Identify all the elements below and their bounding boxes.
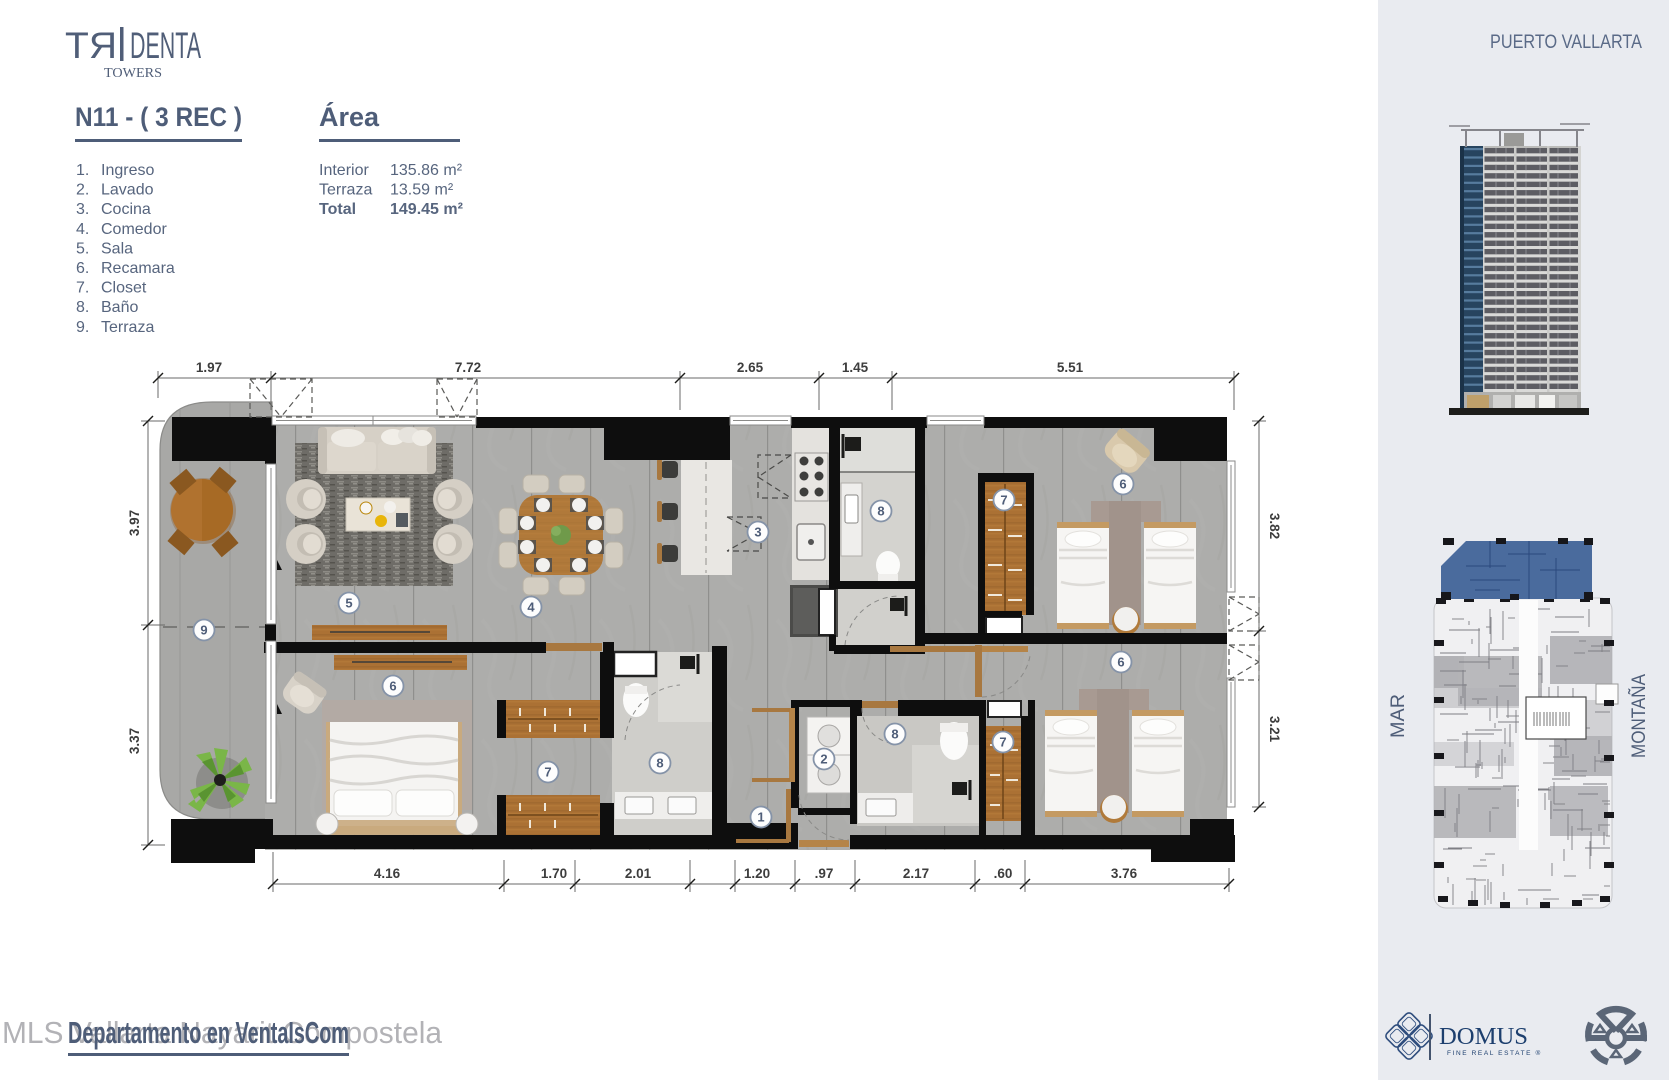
svg-text:5: 5 [345,596,352,611]
svg-text:Baño: Baño [101,299,138,316]
svg-text:2.65: 2.65 [737,360,764,375]
svg-text:2.01: 2.01 [625,866,652,881]
svg-text:4.16: 4.16 [374,866,401,881]
svg-text:3.21: 3.21 [1267,716,1282,743]
svg-text:6: 6 [1117,655,1124,670]
svg-text:7: 7 [544,765,551,780]
svg-text:Departamento en VentaIsCom: Departamento en VentaIsCom [68,1015,349,1050]
svg-text:.97: .97 [815,866,834,881]
svg-text:N11 - ( 3 REC ): N11 - ( 3 REC ) [75,102,242,132]
svg-text:8.: 8. [76,299,89,316]
svg-text:3.: 3. [76,201,89,218]
svg-text:DOMUS: DOMUS [1439,1024,1528,1050]
svg-text:3.82: 3.82 [1267,513,1282,539]
svg-text:1.70: 1.70 [541,866,567,881]
svg-text:3.76: 3.76 [1111,866,1138,881]
svg-text:1: 1 [757,810,764,825]
svg-text:TOWERS: TOWERS [104,66,162,81]
svg-text:149.45 m²: 149.45 m² [390,201,463,218]
svg-text:3.97: 3.97 [127,510,142,536]
svg-text:Cocina: Cocina [101,201,151,218]
svg-text:3.37: 3.37 [127,728,142,754]
svg-text:1.97: 1.97 [196,360,222,375]
svg-text:4: 4 [527,600,535,615]
svg-text:Área: Área [319,101,380,132]
svg-text:Lavado: Lavado [101,182,154,199]
svg-text:DENTA: DENTA [130,25,201,66]
svg-text:2: 2 [820,752,827,767]
svg-text:1.45: 1.45 [842,360,869,375]
svg-text:4.: 4. [76,221,89,238]
svg-text:Sala: Sala [101,240,133,257]
svg-text:2.17: 2.17 [903,866,929,881]
svg-text:FINE REAL ESTATE ®: FINE REAL ESTATE ® [1447,1049,1542,1057]
svg-text:8: 8 [656,756,663,771]
svg-text:7.72: 7.72 [455,360,481,375]
svg-text:7: 7 [1000,493,1007,508]
svg-text:7: 7 [999,735,1006,750]
svg-text:1.20: 1.20 [744,866,770,881]
svg-text:9.: 9. [76,319,89,336]
svg-text:PUERTO VALLARTA: PUERTO VALLARTA [1490,32,1642,53]
svg-text:Total: Total [319,201,356,218]
svg-text:Terraza: Terraza [101,319,154,336]
svg-text:TЯ: TЯ [65,25,117,66]
svg-text:1.: 1. [76,162,89,179]
svg-text:MONTAÑA: MONTAÑA [1628,674,1650,758]
svg-text:5.: 5. [76,240,89,257]
svg-text:8: 8 [891,727,898,742]
svg-text:Terraza: Terraza [319,182,372,199]
svg-text:6.: 6. [76,260,89,277]
svg-text:2.: 2. [76,182,89,199]
svg-text:3: 3 [754,525,761,540]
svg-text:Ingreso: Ingreso [101,162,154,179]
svg-text:9: 9 [200,623,207,638]
svg-text:MAR: MAR [1388,694,1409,738]
svg-text:Interior: Interior [319,162,369,179]
svg-text:Recamara: Recamara [101,260,175,277]
svg-text:Closet: Closet [101,280,147,297]
svg-text:6: 6 [389,679,396,694]
svg-text:6: 6 [1119,477,1126,492]
svg-text:13.59 m²: 13.59 m² [390,182,454,199]
svg-text:135.86 m²: 135.86 m² [390,162,463,179]
svg-text:8: 8 [877,504,884,519]
svg-text:7.: 7. [76,280,89,297]
svg-text:.60: .60 [994,866,1013,881]
svg-text:Comedor: Comedor [101,221,167,238]
svg-text:5.51: 5.51 [1057,360,1084,375]
